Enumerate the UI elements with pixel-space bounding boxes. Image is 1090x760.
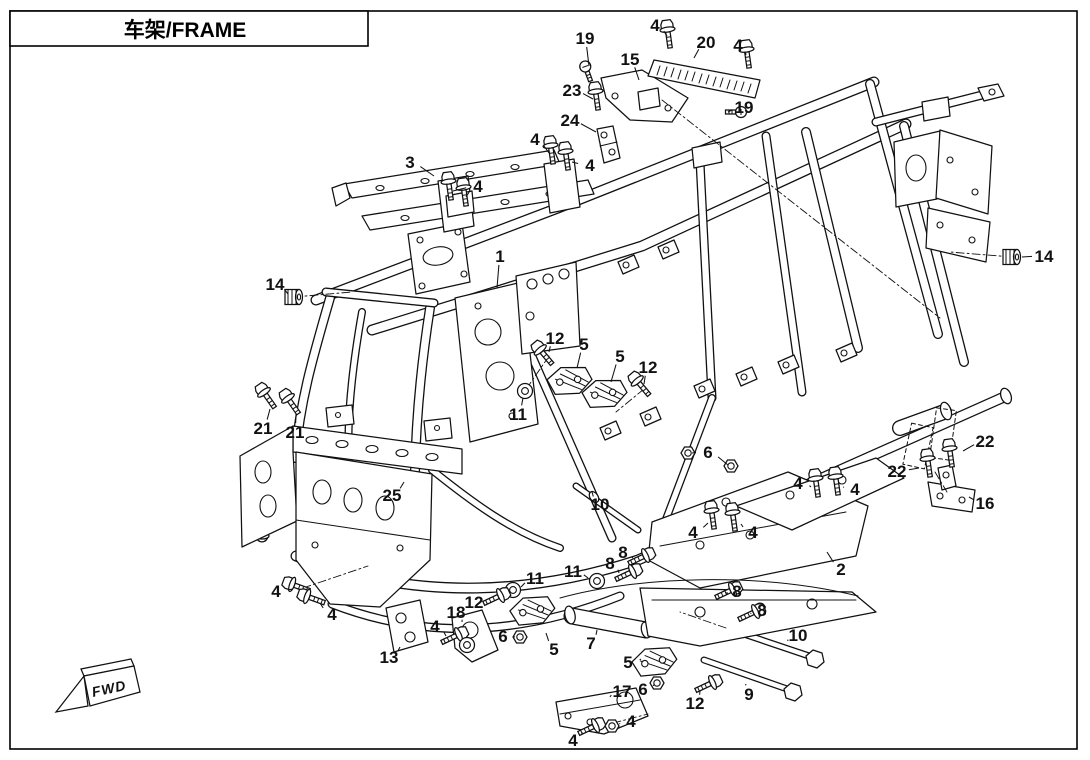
callout-12: 12 <box>465 593 486 612</box>
callout-label-21: 21 <box>286 423 305 442</box>
callout-label-21: 21 <box>254 419 273 438</box>
callout-1: 1 <box>495 247 504 288</box>
callout-4: 4 <box>320 603 337 624</box>
callout-23: 23 <box>563 81 593 100</box>
washer-part <box>460 638 475 653</box>
callout-14: 14 <box>1022 247 1054 266</box>
callout-12: 12 <box>686 691 705 713</box>
callout-25: 25 <box>383 482 404 505</box>
callout-label-22: 22 <box>976 432 995 451</box>
callout-label-17: 17 <box>613 682 632 701</box>
callout-label-25: 25 <box>383 486 402 505</box>
callout-22: 22 <box>888 462 919 481</box>
nut-part <box>724 460 738 472</box>
callout-label-4: 4 <box>650 16 660 35</box>
callout-17: 17 <box>610 682 631 701</box>
parts-diagram-page: 1942041523192443441141255121114212125106… <box>0 0 1090 760</box>
washer-part <box>518 384 533 399</box>
callout-label-6: 6 <box>498 627 507 646</box>
callout-label-8: 8 <box>732 582 741 601</box>
callout-label-4: 4 <box>271 582 281 601</box>
callout-label-12: 12 <box>546 329 565 348</box>
callout-5: 5 <box>546 633 559 659</box>
callout-7: 7 <box>586 630 597 653</box>
callout-label-4: 4 <box>585 156 595 175</box>
callout-label-14: 14 <box>266 275 285 294</box>
callout-label-19: 19 <box>735 98 754 117</box>
callout-labels-layer: 1942041523192443441141255121114212125106… <box>254 16 1054 750</box>
callout-label-22: 22 <box>888 462 907 481</box>
callout-label-12: 12 <box>639 358 658 377</box>
nut-part <box>513 631 527 643</box>
callout-label-4: 4 <box>793 474 803 493</box>
grommet-part <box>1003 250 1021 265</box>
callout-label-7: 7 <box>586 634 595 653</box>
callout-label-4: 4 <box>530 130 540 149</box>
callout-label-4: 4 <box>327 605 337 624</box>
nut-part <box>605 720 619 732</box>
callout-label-5: 5 <box>623 653 632 672</box>
grommet-part <box>285 290 303 305</box>
callout-label-6: 6 <box>703 443 712 462</box>
page-title: 车架/FRAME <box>124 18 247 42</box>
callout-label-2: 2 <box>836 560 845 579</box>
callout-label-13: 13 <box>380 648 399 667</box>
mount-part <box>630 642 680 681</box>
callout-label-4: 4 <box>430 617 440 636</box>
callout-label-20: 20 <box>697 33 716 52</box>
callout-label-1: 1 <box>495 247 504 266</box>
bolt-part <box>659 19 678 49</box>
callout-label-4: 4 <box>748 523 758 542</box>
bolt-part <box>941 438 960 468</box>
callout-10: 10 <box>591 492 610 514</box>
callout-label-3: 3 <box>405 153 414 172</box>
frame-line-art <box>240 60 1013 734</box>
callout-label-4: 4 <box>626 712 636 731</box>
callout-24: 24 <box>561 111 596 132</box>
callout-label-5: 5 <box>615 347 624 366</box>
callout-5: 5 <box>577 335 589 368</box>
frame-exploded-diagram: 1942041523192443441141255121114212125106… <box>0 0 1090 760</box>
callout-label-12: 12 <box>686 694 705 713</box>
callout-9: 9 <box>744 684 753 704</box>
washer-part <box>590 574 605 589</box>
callout-18: 18 <box>447 603 466 622</box>
callout-10: 10 <box>788 626 808 645</box>
callout-label-4: 4 <box>733 36 743 55</box>
callout-label-6: 6 <box>638 680 647 699</box>
callout-label-11: 11 <box>564 562 582 581</box>
callout-label-11: 11 <box>526 569 544 588</box>
callout-label-11: 11 <box>509 405 527 424</box>
callout-label-23: 23 <box>563 81 582 100</box>
callout-label-14: 14 <box>1035 247 1054 266</box>
callout-label-8: 8 <box>618 543 627 562</box>
callout-label-16: 16 <box>976 494 995 513</box>
nut-part <box>650 677 664 689</box>
title-block: 车架/FRAME <box>10 11 368 46</box>
bolt-part <box>919 448 938 478</box>
bolt-part <box>252 380 280 412</box>
fwd-arrow-head <box>56 676 88 712</box>
callout-22: 22 <box>963 432 994 451</box>
callout-label-8: 8 <box>757 601 766 620</box>
callout-label-9: 9 <box>744 685 753 704</box>
callout-label-4: 4 <box>568 731 578 750</box>
callout-label-10: 10 <box>789 626 808 645</box>
callout-label-15: 15 <box>621 50 640 69</box>
callout-13: 13 <box>380 647 400 667</box>
callout-label-4: 4 <box>850 480 860 499</box>
callout-label-19: 19 <box>576 29 595 48</box>
callout-20: 20 <box>694 33 715 58</box>
callout-label-24: 24 <box>561 111 580 130</box>
callout-label-18: 18 <box>447 603 466 622</box>
callout-label-12: 12 <box>465 593 484 612</box>
callout-label-4: 4 <box>688 523 698 542</box>
callout-label-8: 8 <box>605 554 614 573</box>
callout-label-5: 5 <box>579 335 588 354</box>
callout-5: 5 <box>611 347 625 382</box>
screw-part <box>578 59 596 82</box>
callout-21: 21 <box>254 409 273 438</box>
callout-label-4: 4 <box>473 177 483 196</box>
fwd-direction-arrow: FWD <box>56 659 140 712</box>
callout-label-10: 10 <box>591 495 610 514</box>
callout-6: 6 <box>498 627 515 646</box>
callout-label-5: 5 <box>549 640 558 659</box>
